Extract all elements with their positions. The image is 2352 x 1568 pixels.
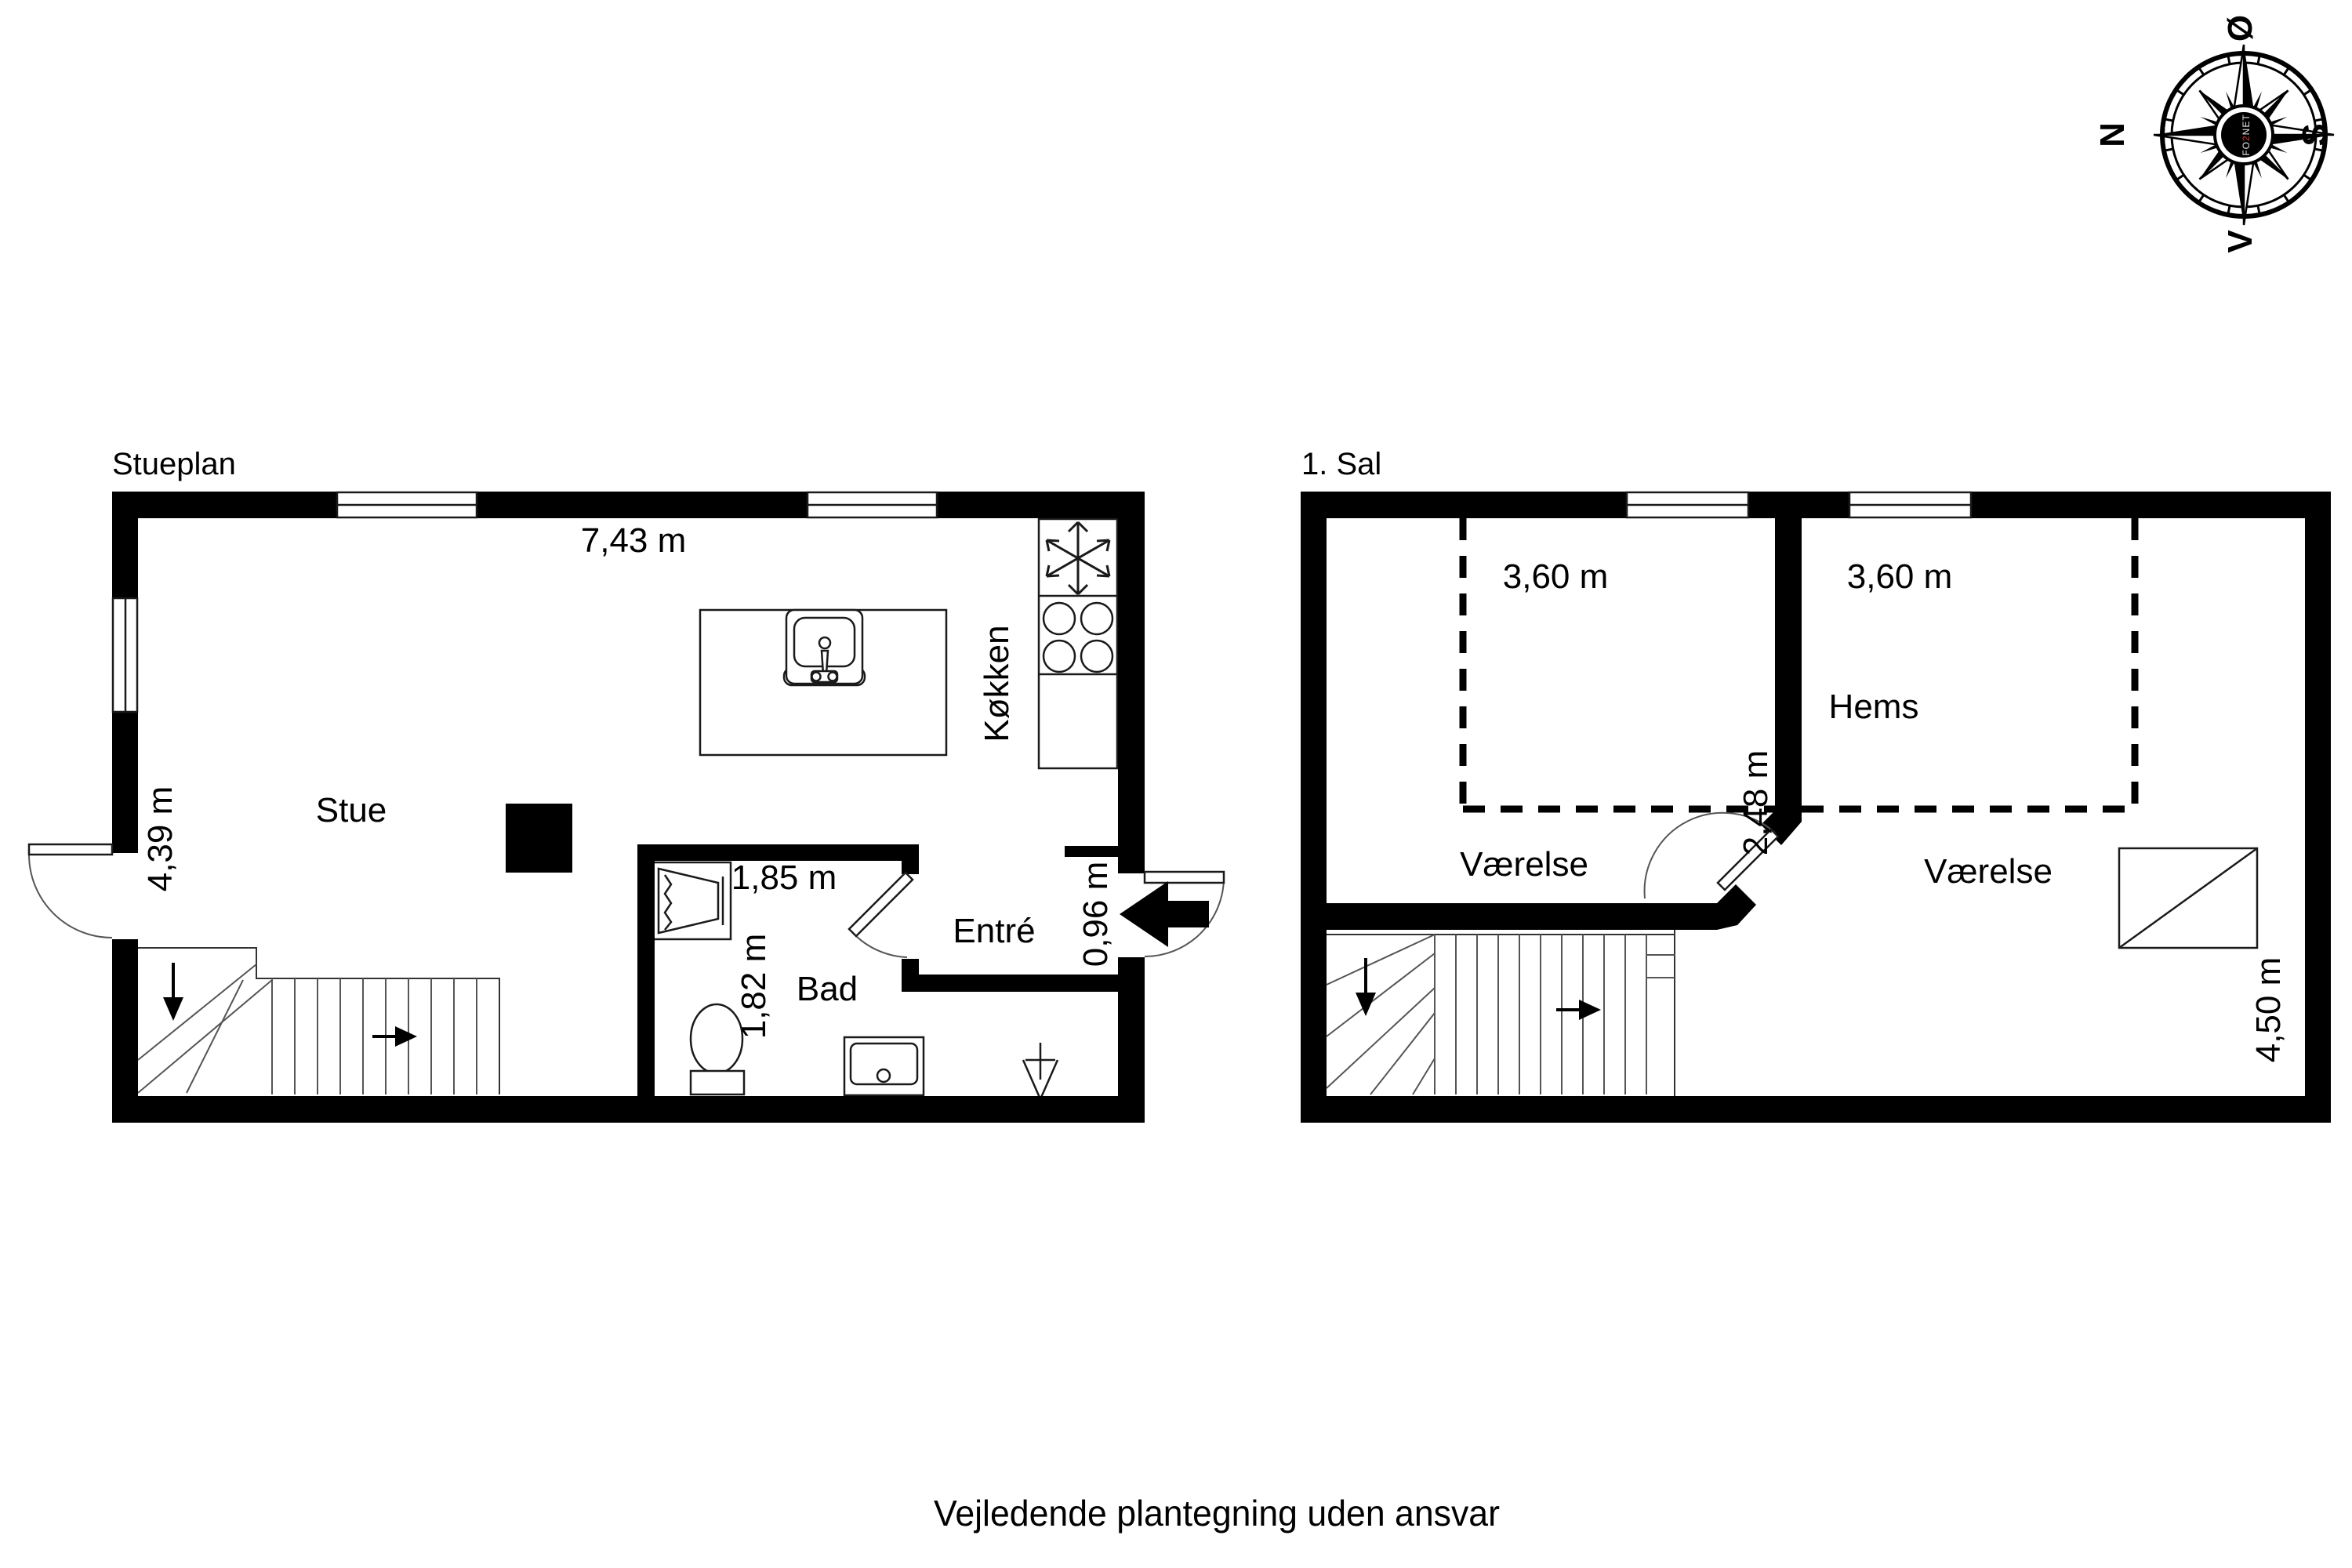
dimension-label-entry-depth: 0,96 m (1079, 862, 1113, 967)
staircase-first (1327, 930, 1675, 1096)
terrace-door (29, 844, 138, 939)
ground-floor-title: Stueplan (112, 448, 236, 480)
stair-down-arrow (163, 963, 183, 1021)
dimension-label-bath-width: 1,85 m (731, 861, 837, 895)
room-label-loft: Hems (1829, 690, 1919, 724)
dimension-label-width: 7,43 m (581, 524, 687, 558)
room-label-bath: Bad (797, 972, 858, 1007)
dimension-label-loft-depth: 2,48 m (1739, 750, 1773, 856)
compass-label-east: Ø (2223, 15, 2258, 42)
bathroom-door (849, 873, 913, 957)
room-label-room-right: Værelse (1924, 855, 2053, 889)
first-floor-plan (1301, 492, 2331, 1123)
stair-down-arrow (1356, 958, 1376, 1016)
fireplace (506, 804, 572, 873)
bathtub (652, 862, 731, 939)
compass-logo: FO2NET (2241, 114, 2252, 155)
dimension-label-right-width: 3,60 m (1847, 560, 1953, 594)
room-label-living: Stue (316, 793, 387, 828)
room-label-entry: Entré (953, 914, 1035, 949)
room-label-kitchen: Køkken (980, 625, 1014, 742)
dimension-label-bath-depth: 1,82 m (737, 934, 771, 1040)
compass-label-south: S (2298, 123, 2332, 146)
floor-drain-icon (1023, 1043, 1058, 1099)
staircase-ground (138, 948, 499, 1094)
compass-label-north: N (2096, 122, 2130, 147)
dimension-label-depth: 4,39 m (143, 786, 178, 892)
dimension-label-room-depth: 4,50 m (2252, 957, 2286, 1063)
dimension-label-left-width: 3,60 m (1503, 560, 1609, 594)
floorplan-sheet: FO2NET Stueplan 1. Sal 7,43 m 4,39 m Køk… (0, 0, 2352, 1568)
compass-label-west: V (2223, 230, 2258, 252)
floorplan-linework: FO2NET (0, 0, 2352, 1568)
ground-floor-walls (112, 492, 1145, 1123)
first-floor-title: 1. Sal (1301, 448, 1381, 480)
footer-disclaimer: Vejledende plantegning uden ansvar (934, 1495, 1500, 1531)
room-label-room-left: Værelse (1460, 848, 1588, 882)
stair-up-arrow (372, 1026, 417, 1047)
island-sink (784, 610, 865, 685)
stair-up-arrow (1556, 1000, 1601, 1020)
bathroom-sink (844, 1037, 924, 1095)
ground-floor-plan (29, 492, 1224, 1123)
skylight (2119, 848, 2257, 948)
